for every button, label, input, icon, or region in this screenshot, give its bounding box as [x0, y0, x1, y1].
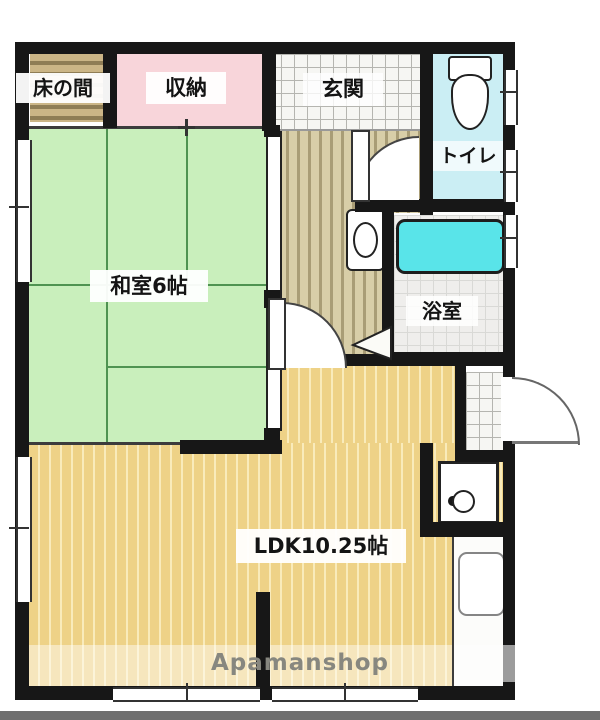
wall-japanese-room-ldk [180, 440, 282, 454]
window-toilet-1 [504, 70, 518, 125]
window-toilet-2 [504, 150, 518, 202]
tatami-line [106, 286, 108, 443]
bathroom-folding-door [350, 324, 394, 362]
kitchen-sink-icon [458, 552, 505, 616]
window-tick [500, 237, 518, 239]
window-japanese-room [16, 140, 32, 282]
stove-burner-icon [452, 490, 475, 513]
window-tick [186, 683, 188, 701]
label-entrance: 玄関 [303, 73, 383, 106]
window-tick [500, 171, 518, 173]
window-tick [9, 206, 29, 208]
room-boundary-line [29, 442, 182, 445]
kitchen-counter-wall-h [420, 522, 503, 537]
kitchen-strip-divider [452, 537, 454, 688]
wall-porch-bottom [455, 450, 505, 462]
window-tick [500, 91, 518, 93]
closet-bottom-line [29, 126, 262, 129]
entry-door-leaf [512, 441, 578, 444]
bathtub-icon [396, 219, 505, 274]
label-storage: 収納 [146, 72, 226, 104]
entry-door-swing [512, 377, 580, 445]
wall-stub [264, 125, 280, 137]
tatami-line [106, 366, 268, 368]
wall-closet-entrance [262, 42, 276, 131]
door-center-mark [178, 126, 195, 129]
entrance-step-line [268, 129, 420, 131]
window-tick [344, 683, 346, 701]
bottom-gray-bar [0, 711, 600, 720]
toilet-door-leaf [351, 130, 370, 202]
window-ldk-left [16, 457, 32, 602]
tatami-line [186, 128, 188, 286]
label-bathroom: 浴室 [406, 296, 478, 326]
wall-porch-left [455, 366, 466, 452]
label-ldk: LDK10.25帖 [236, 529, 406, 563]
washbasin-bowl-icon [353, 222, 378, 258]
hallway-ldk-door-leaf [268, 298, 286, 370]
floorplan-canvas: 床の間 収納 玄関 トイレ 和室6帖 浴室 LDK10.25帖 Apamansh… [0, 0, 600, 720]
label-toilet: トイレ [433, 141, 503, 171]
wall-toilet-left [420, 42, 433, 215]
sliding-door-partition [266, 131, 282, 431]
wall-bottom [15, 686, 515, 700]
kitchen-door-porch-tile [466, 372, 503, 450]
window-kitchen-right [503, 645, 515, 682]
label-japanese-room: 和室6帖 [90, 270, 208, 302]
window-tick [9, 527, 29, 529]
tatami-line [106, 128, 108, 286]
ldk-floor-upper [278, 366, 455, 443]
wall-toilet-bottom [355, 199, 515, 212]
label-tokonoma: 床の間 [16, 73, 110, 103]
window-bathroom [504, 215, 518, 268]
apamanshop-watermark: Apamanshop [180, 649, 420, 677]
wall-right [503, 42, 515, 700]
wall-bath-bottom [382, 352, 513, 366]
